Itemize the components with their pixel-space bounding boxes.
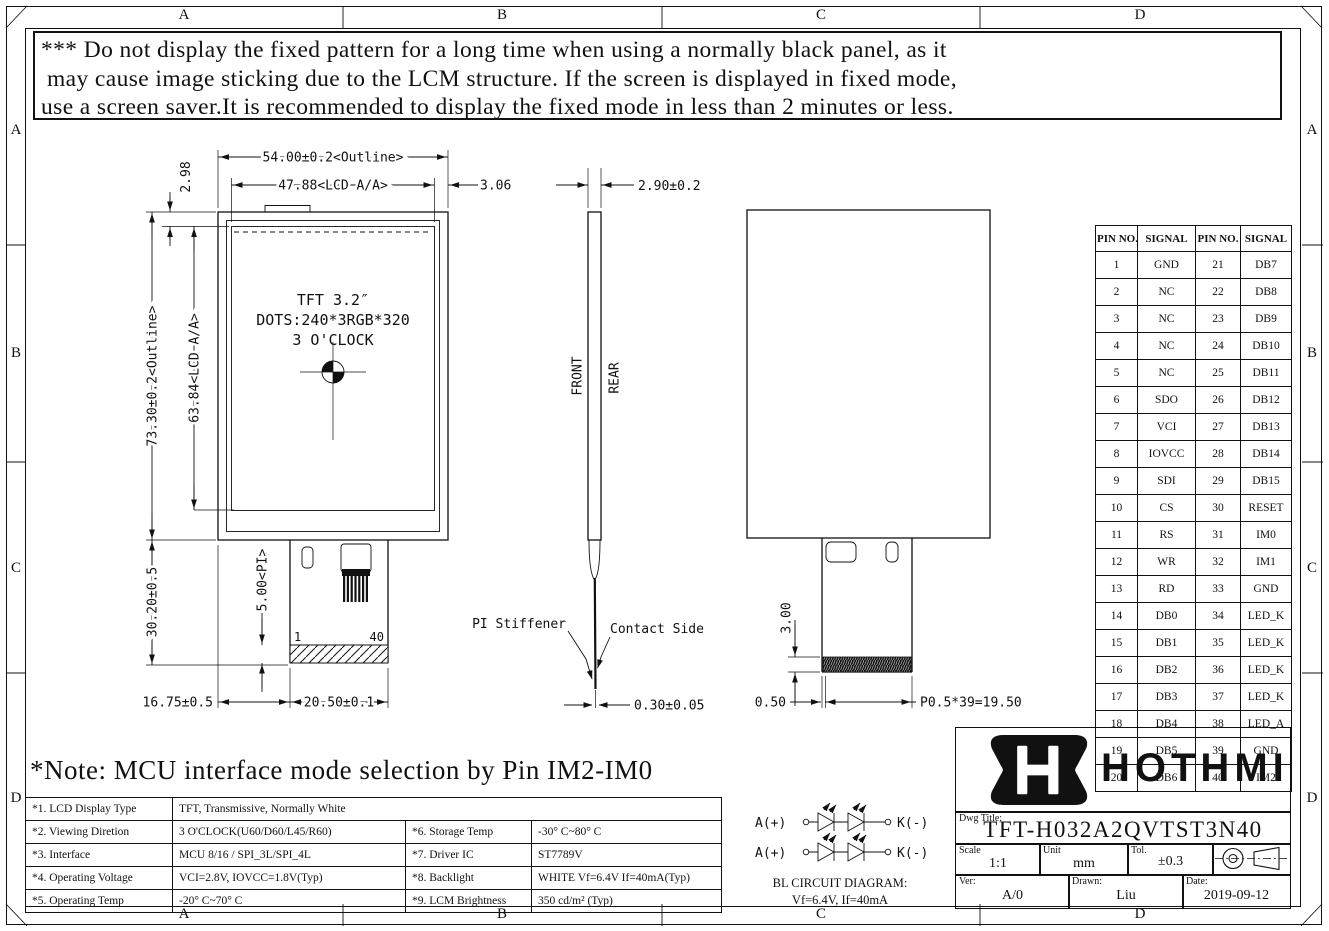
table-cell: IM1	[1241, 549, 1292, 576]
signal-header: SIGNAL	[1138, 226, 1196, 252]
table-cell: 35	[1196, 630, 1241, 657]
table-row: 15DB135LED_K	[1096, 630, 1292, 657]
pin-no-header: PIN NO.	[1096, 226, 1138, 252]
table-cell: 34	[1196, 603, 1241, 630]
zone-left-c: C	[5, 560, 27, 580]
table-cell: *6. Storage Temp	[406, 821, 532, 844]
table-cell: VCI	[1138, 414, 1196, 441]
table-cell: SDI	[1138, 468, 1196, 495]
table-cell: GND	[1241, 576, 1292, 603]
table-row: 2NC22DB8	[1096, 279, 1292, 306]
logo-cell: HOTHMI	[955, 727, 1291, 813]
table-cell: DB11	[1241, 360, 1292, 387]
table-row: 1GND21DB7	[1096, 252, 1292, 279]
mcu-note-heading: *Note: MCU interface mode selection by P…	[30, 755, 653, 786]
table-row: 7VCI27DB13	[1096, 414, 1292, 441]
table-cell: RESET	[1241, 495, 1292, 522]
table-cell: 3	[1096, 306, 1138, 333]
table-row: 6SDO26DB12	[1096, 387, 1292, 414]
table-cell: 8	[1096, 441, 1138, 468]
table-cell: RD	[1138, 576, 1196, 603]
zone-left-d: D	[5, 790, 27, 810]
table-cell: 27	[1196, 414, 1241, 441]
version-cell: Ver: A/0	[955, 874, 1070, 909]
zone-right-a: A	[1301, 122, 1323, 142]
table-row: 16DB236LED_K	[1096, 657, 1292, 684]
drawing-sheet: TFT 3.2″ DOTS:240*3RGB*320 3 O'CLOCK 54.…	[0, 0, 1329, 931]
table-cell: *7. Driver IC	[406, 844, 532, 867]
table-cell: TFT, Transmissive, Normally White	[173, 798, 722, 821]
table-cell: 2	[1096, 279, 1138, 306]
unit-value: mm	[1040, 856, 1128, 872]
table-cell: WHITE Vf=6.4V If=40mA(Typ)	[532, 867, 722, 890]
table-row: *4. Operating VoltageVCI=2.8V, IOVCC=1.8…	[26, 867, 722, 890]
table-cell: 7	[1096, 414, 1138, 441]
table-cell: 36	[1196, 657, 1241, 684]
table-cell: 24	[1196, 333, 1241, 360]
table-cell: 21	[1196, 252, 1241, 279]
table-cell: *8. Backlight	[406, 867, 532, 890]
table-row: 13RD33GND	[1096, 576, 1292, 603]
date-label: Date:	[1186, 876, 1208, 887]
zone-top-a: A	[173, 7, 195, 27]
table-cell: 10	[1096, 495, 1138, 522]
table-cell: *9. LCM Brightness	[406, 890, 532, 913]
table-cell: RS	[1138, 522, 1196, 549]
table-cell: DB7	[1241, 252, 1292, 279]
table-row: 9SDI29DB15	[1096, 468, 1292, 495]
zone-top-d: D	[1129, 7, 1151, 27]
table-cell: -30° C~80° C	[532, 821, 722, 844]
table-cell: 350 cd/m² (Typ)	[532, 890, 722, 913]
table-cell: VCI=2.8V, IOVCC=1.8V(Typ)	[173, 867, 406, 890]
table-row: 11RS31IM0	[1096, 522, 1292, 549]
drawn-by-value: Liu	[1069, 888, 1183, 904]
table-cell: NC	[1138, 306, 1196, 333]
zone-left-b: B	[5, 345, 27, 365]
table-cell: 14	[1096, 603, 1138, 630]
tolerance-cell: Tol. ±0.3	[1127, 843, 1214, 876]
table-cell: MCU 8/16 / SPI_3L/SPI_4L	[173, 844, 406, 867]
table-cell: LED_K	[1241, 603, 1292, 630]
table-row: 12WR32IM1	[1096, 549, 1292, 576]
table-cell: WR	[1138, 549, 1196, 576]
version-value: A/0	[956, 888, 1069, 904]
table-cell: NC	[1138, 360, 1196, 387]
table-cell: DB2	[1138, 657, 1196, 684]
signal-header: SIGNAL	[1241, 226, 1292, 252]
table-cell: *1. LCD Display Type	[26, 798, 173, 821]
table-cell: 31	[1196, 522, 1241, 549]
table-cell: -20° C~70° C	[173, 890, 406, 913]
table-cell: 11	[1096, 522, 1138, 549]
table-cell: DB9	[1241, 306, 1292, 333]
table-cell: 12	[1096, 549, 1138, 576]
table-cell: LED_K	[1241, 684, 1292, 711]
table-row: *1. LCD Display TypeTFT, Transmissive, N…	[26, 798, 722, 821]
table-cell: 32	[1196, 549, 1241, 576]
warning-line-1: *** Do not display the fixed pattern for…	[41, 36, 1274, 65]
table-cell: 29	[1196, 468, 1241, 495]
dwg-title-value: TFT-H032A2QVTST3N40	[956, 817, 1290, 843]
table-cell: DB10	[1241, 333, 1292, 360]
table-row: 17DB337LED_K	[1096, 684, 1292, 711]
warning-line-2: may cause image sticking due to the LCM …	[41, 65, 1274, 94]
table-row: *3. InterfaceMCU 8/16 / SPI_3L/SPI_4L*7.…	[26, 844, 722, 867]
table-cell: CS	[1138, 495, 1196, 522]
table-row: 3NC23DB9	[1096, 306, 1292, 333]
pin-table-header-row: PIN NO. SIGNAL PIN NO. SIGNAL	[1096, 226, 1292, 252]
table-cell: 33	[1196, 576, 1241, 603]
table-cell: DB3	[1138, 684, 1196, 711]
zone-right-b: B	[1301, 345, 1323, 365]
table-cell: *5. Operating Temp	[26, 890, 173, 913]
table-cell: 13	[1096, 576, 1138, 603]
date-cell: Date: 2019-09-12	[1182, 874, 1291, 909]
table-cell: DB0	[1138, 603, 1196, 630]
table-cell: 17	[1096, 684, 1138, 711]
date-value: 2019-09-12	[1183, 888, 1290, 904]
pin-no-header: PIN NO.	[1196, 226, 1241, 252]
table-cell: 16	[1096, 657, 1138, 684]
warning-line-3: use a screen saver.It is recommended to …	[41, 93, 1274, 122]
table-cell: IOVCC	[1138, 441, 1196, 468]
table-cell: 30	[1196, 495, 1241, 522]
table-cell: *2. Viewing Diretion	[26, 821, 173, 844]
table-cell: SDO	[1138, 387, 1196, 414]
table-row: 4NC24DB10	[1096, 333, 1292, 360]
table-row: 5NC25DB11	[1096, 360, 1292, 387]
first-angle-projection-icon	[1213, 844, 1289, 873]
table-row: 14DB034LED_K	[1096, 603, 1292, 630]
table-cell: DB13	[1241, 414, 1292, 441]
table-cell: 28	[1196, 441, 1241, 468]
drawn-by-cell: Drawn: Liu	[1068, 874, 1184, 909]
projection-symbol-cell	[1212, 843, 1291, 876]
dwg-title-cell: Dwg Title: TFT-H032A2QVTST3N40	[955, 811, 1291, 845]
pin-assignment-table: PIN NO. SIGNAL PIN NO. SIGNAL 1GND21DB72…	[1095, 225, 1292, 792]
scale-cell: Scale 1:1	[955, 843, 1041, 876]
unit-cell: Unit mm	[1039, 843, 1129, 876]
scale-value: 1:1	[956, 856, 1040, 872]
unit-label: Unit	[1043, 845, 1061, 856]
spec-table: *1. LCD Display TypeTFT, Transmissive, N…	[25, 797, 722, 913]
table-cell: 5	[1096, 360, 1138, 387]
zone-top-c: C	[810, 7, 832, 27]
table-cell: LED_K	[1241, 630, 1292, 657]
table-cell: 6	[1096, 387, 1138, 414]
table-cell: NC	[1138, 333, 1196, 360]
table-row: *2. Viewing Diretion3 O'CLOCK(U60/D60/L4…	[26, 821, 722, 844]
title-block: HOTHMI Dwg Title: TFT-H032A2QVTST3N40 Sc…	[955, 727, 1292, 910]
table-cell: IM0	[1241, 522, 1292, 549]
table-cell: 25	[1196, 360, 1241, 387]
table-cell: *4. Operating Voltage	[26, 867, 173, 890]
scale-label: Scale	[959, 845, 981, 856]
zone-right-d: D	[1301, 790, 1323, 810]
table-cell: 22	[1196, 279, 1241, 306]
table-cell: DB15	[1241, 468, 1292, 495]
tolerance-value: ±0.3	[1128, 854, 1213, 870]
table-cell: 3 O'CLOCK(U60/D60/L45/R60)	[173, 821, 406, 844]
table-cell: DB1	[1138, 630, 1196, 657]
drawn-by-label: Drawn:	[1072, 876, 1102, 887]
table-cell: LED_K	[1241, 657, 1292, 684]
zone-right-c: C	[1301, 560, 1323, 580]
table-row: 8IOVCC28DB14	[1096, 441, 1292, 468]
table-cell: 15	[1096, 630, 1138, 657]
warning-note: *** Do not display the fixed pattern for…	[33, 31, 1282, 120]
table-cell: NC	[1138, 279, 1196, 306]
table-cell: DB12	[1241, 387, 1292, 414]
table-cell: 4	[1096, 333, 1138, 360]
hothmi-logo-icon	[988, 733, 1090, 807]
table-cell: GND	[1138, 252, 1196, 279]
zone-bottom-c: C	[810, 906, 832, 926]
brand-name: HOTHMI	[1101, 746, 1289, 791]
zone-top-b: B	[491, 7, 513, 27]
version-label: Ver:	[959, 876, 976, 887]
table-cell: 1	[1096, 252, 1138, 279]
table-cell: 23	[1196, 306, 1241, 333]
table-cell: DB14	[1241, 441, 1292, 468]
zone-left-a: A	[5, 122, 27, 142]
table-cell: ST7789V	[532, 844, 722, 867]
table-cell: *3. Interface	[26, 844, 173, 867]
table-cell: 37	[1196, 684, 1241, 711]
table-cell: 26	[1196, 387, 1241, 414]
table-row: 10CS30RESET	[1096, 495, 1292, 522]
table-cell: DB8	[1241, 279, 1292, 306]
table-row: *5. Operating Temp-20° C~70° C*9. LCM Br…	[26, 890, 722, 913]
table-cell: 9	[1096, 468, 1138, 495]
